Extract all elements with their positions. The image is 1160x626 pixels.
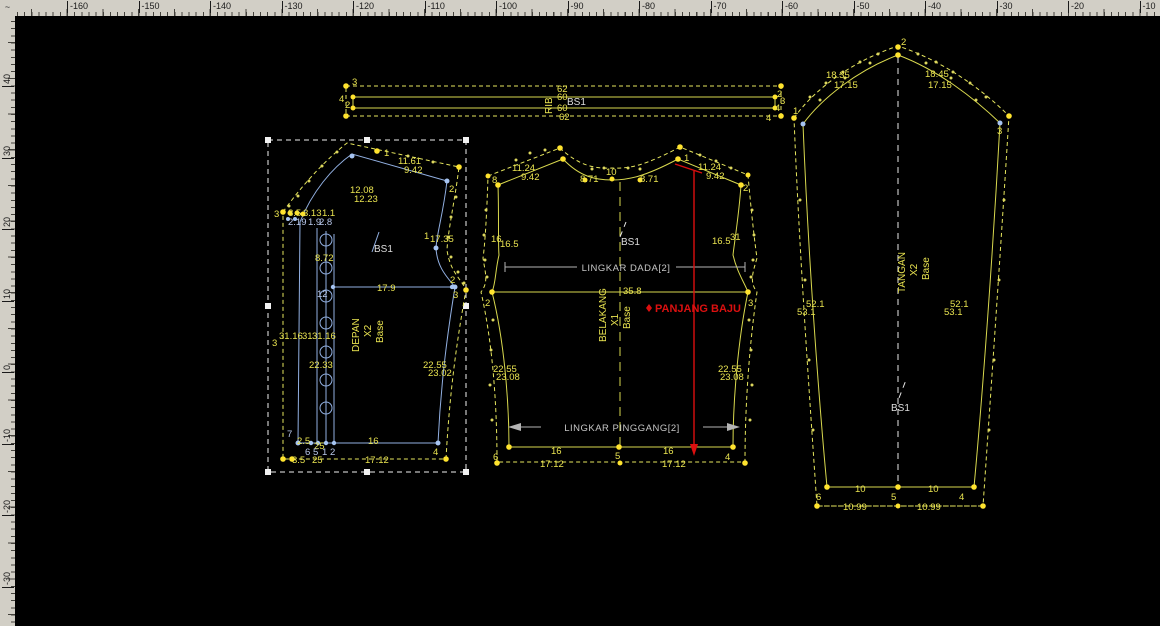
belakang-point-label: 3 (748, 298, 753, 309)
ruler-top-label: -30 (997, 1, 1013, 13)
drawing-canvas[interactable]: 3 4 2 RIB 62 60 BS1 60 62 2 3 4 4 (15, 16, 1160, 626)
ruler-top-label: -60 (782, 1, 798, 13)
ruler-left-label: 40 (2, 74, 14, 87)
belakang-name-label: BELAKANG (598, 288, 609, 342)
ruler-top-label: -130 (282, 1, 303, 13)
lingkar-dada-label: LINGKAR DADA[2] (582, 263, 671, 274)
depan-point-label: 6 (305, 447, 310, 458)
ruler-left-label: 20 (2, 217, 14, 230)
rib-point-label: 4 (775, 103, 780, 114)
panjang-baju-measure: PANJANG BAJU (646, 164, 741, 456)
tangan-dim: 10.99 (917, 502, 941, 513)
rib-dim: 62 (559, 112, 570, 123)
tangan-point-label: 4 (959, 492, 964, 503)
depan-base-size: BS1 (374, 244, 393, 255)
belakang-point-label: 5 (615, 451, 620, 462)
depan-name-label: DEPAN (351, 318, 362, 352)
ruler-top-label: -150 (139, 1, 160, 13)
lingkar-dada-dimension: LINGKAR DADA[2] (505, 262, 745, 274)
belakang-point-label: 31 (730, 232, 741, 243)
depan-dim: 9.42 (404, 165, 423, 176)
depan-point-label: 1 (322, 447, 327, 458)
depan-dim: 17.12 (365, 455, 389, 466)
belakang-dim: 16.5 (500, 239, 519, 250)
ruler-left-label: 10 (2, 288, 14, 301)
depan-point-label: 2 (449, 184, 454, 195)
ruler-top-label: -140 (210, 1, 231, 13)
belakang-dim: 9.42 (521, 172, 540, 183)
rib-dim: 60 (557, 92, 568, 103)
depan-base-label: Base (375, 320, 386, 343)
belakang-base-size: BS1 (621, 237, 640, 248)
ruler-left-label: -20 (2, 500, 14, 516)
belakang-point-label: 10 (606, 167, 617, 178)
ruler-left-label: -10 (2, 428, 14, 444)
depan-dim: 23.02 (428, 368, 452, 379)
belakang-dim: 17.12 (540, 459, 564, 470)
depan-dim: 2.19 (288, 217, 307, 228)
belakang-point-label: 2 (485, 298, 490, 309)
belakang-dim: 35.8 (623, 286, 642, 297)
pattern-drawing: 3 4 2 RIB 62 60 BS1 60 62 2 3 4 4 (15, 16, 1160, 626)
belakang-point-label: 8 (492, 175, 497, 186)
ruler-top-label: -120 (353, 1, 374, 13)
depan-dim: 16 (368, 436, 379, 447)
depan-point-label: 3 (272, 338, 277, 349)
depan-dim: 31 (302, 331, 313, 342)
rib-base-size: BS1 (567, 97, 586, 108)
depan-cut-line (283, 143, 466, 459)
tangan-point-label: 3 (997, 126, 1002, 137)
ruler-top-label: -40 (925, 1, 941, 13)
belakang-dim: 16.5 (712, 236, 731, 247)
belakang-dim: 17.12 (662, 459, 686, 470)
depan-point-label: 1 (384, 148, 389, 159)
piece-depan[interactable]: 1 11.61 9.42 2 12.08 12.23 3 8.5 3.13 1.… (265, 137, 469, 475)
piece-belakang[interactable]: LINGKAR DADA[2] LINGKAR PINGGANG[2] PA (481, 144, 757, 470)
ruler-top-label: -90 (568, 1, 584, 13)
belakang-base-label: Base (622, 306, 633, 329)
depan-qty-label: X2 (363, 324, 374, 337)
tangan-base-label: Base (921, 257, 932, 280)
tangan-name-label: TANGAN (897, 252, 908, 293)
depan-dim: 12.23 (354, 194, 378, 205)
ruler-left: 403020100-10-20-30 (0, 16, 15, 626)
ruler-top-label: -50 (854, 1, 870, 13)
ruler-top-label: -100 (496, 1, 517, 13)
depan-dim: 31.16 (279, 331, 303, 342)
belakang-dim: 8.71 (580, 174, 599, 185)
ruler-top-label: -20 (1068, 1, 1084, 13)
tangan-dim: 17.15 (834, 80, 858, 91)
depan-dim: 2.5 (297, 436, 310, 447)
tangan-point-label: 2 (901, 37, 906, 48)
belakang-dim: 23.08 (720, 372, 744, 383)
belakang-dim: 16 (551, 446, 562, 457)
ruler-left-label: 0 (2, 365, 14, 373)
belakang-dim: 16 (663, 446, 674, 457)
depan-point-label: 3 (453, 290, 458, 301)
tangan-point-label: 6 (816, 492, 821, 503)
ruler-left-label: -30 (2, 571, 14, 587)
ruler-top-label: -10 (1140, 1, 1156, 13)
depan-point-label: 3 (274, 209, 279, 220)
tangan-dim: 10 (855, 484, 866, 495)
belakang-point-label: 6 (493, 452, 498, 463)
ruler-top: -160-150-140-130-120-110-100-90-80-70-60… (15, 0, 1160, 16)
piece-tangan[interactable]: 2 18.35 17.15 18.45 17.15 1 3 52.1 53.1 … (791, 37, 1012, 513)
ruler-left-label: 30 (2, 145, 14, 158)
tangan-base-size: BS1 (891, 403, 910, 414)
lingkar-pinggang-dimension: LINGKAR PINGGANG[2] (508, 423, 740, 434)
tangan-dim: 17.15 (928, 80, 952, 91)
rib-name-label: RIB (544, 97, 555, 114)
ruler-top-label: -110 (425, 1, 445, 13)
depan-point-label: 4 (433, 447, 438, 458)
pattern-cad-window: ~ -160-150-140-130-120-110-100-90-80-70-… (0, 0, 1160, 626)
depan-point-label: 2 (330, 447, 335, 458)
depan-dim: 3.5 (292, 455, 305, 466)
rib-point-label: 4 (766, 113, 771, 124)
rib-point-label: 2 (345, 100, 350, 111)
depan-point-label: 7 (287, 429, 292, 440)
tangan-point-label: 1 (793, 106, 798, 117)
belakang-point-label: 1 (684, 153, 689, 164)
rib-point-label: 3 (352, 77, 357, 88)
ruler-origin-icon[interactable]: ~ (0, 0, 16, 17)
depan-dim: 17.9 (377, 283, 396, 294)
depan-dim: 17.35 (430, 234, 454, 245)
belakang-dim: 23.08 (496, 372, 520, 383)
lingkar-pinggang-label: LINGKAR PINGGANG[2] (564, 423, 680, 434)
belakang-qty-label: X1 (610, 313, 621, 326)
tangan-dim: 18.45 (925, 69, 949, 80)
depan-dim: 22.33 (309, 360, 333, 371)
depan-point-label: 1 (424, 231, 429, 242)
belakang-dim: 8.71 (640, 174, 659, 185)
depan-dim: 31.16 (312, 331, 336, 342)
piece-rib[interactable]: 3 4 2 RIB 62 60 BS1 60 62 2 3 4 4 (339, 77, 785, 124)
depan-dim: 25 (312, 455, 323, 466)
tangan-dim: 10 (928, 484, 939, 495)
tangan-dim: 53.1 (944, 307, 963, 318)
panjang-baju-label: PANJANG BAJU (655, 303, 741, 315)
belakang-point-label: 2 (743, 183, 748, 194)
rib-point-label: 4 (339, 94, 344, 105)
rib-point-label: 3 (780, 96, 785, 107)
depan-point-label: 12 (317, 289, 328, 300)
ruler-top-label: -70 (711, 1, 727, 13)
ruler-top-label: -160 (67, 1, 88, 13)
ruler-top-label: -80 (639, 1, 655, 13)
tangan-dim: 10.99 (843, 502, 867, 513)
depan-dim: 8.72 (315, 253, 334, 264)
belakang-dim: 9.42 (706, 171, 725, 182)
tangan-dim: 53.1 (797, 307, 816, 318)
belakang-point-label: 4 (725, 452, 730, 463)
depan-dim: 2.8 (319, 217, 332, 228)
tangan-point-label: 5 (891, 492, 896, 503)
tangan-qty-label: X2 (909, 263, 920, 276)
depan-point-label: 2 (450, 275, 455, 286)
